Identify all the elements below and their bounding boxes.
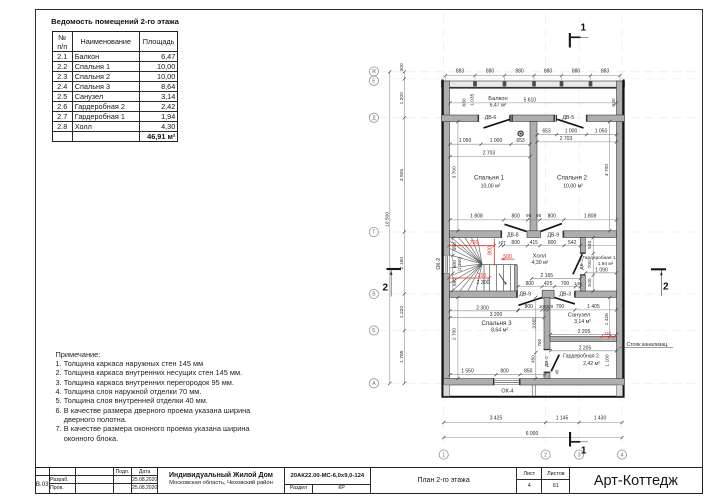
svg-text:2 700: 2 700 [452,328,458,341]
svg-text:1: 1 [581,445,587,456]
svg-text:653: 653 [516,138,525,144]
svg-text:Гардеробная 2: Гардеробная 2 [563,354,599,360]
svg-text:А: А [372,381,376,387]
svg-text:1 808: 1 808 [584,213,597,219]
svg-text:1: 1 [581,22,587,33]
svg-text:Е: Е [372,78,376,84]
svg-text:3,14 м²: 3,14 м² [574,319,591,325]
svg-text:880: 880 [515,69,524,75]
svg-text:2: 2 [663,282,669,293]
svg-text:Балкон: Балкон [488,96,507,102]
svg-text:140: 140 [574,281,582,286]
svg-text:Спальня 1: Спальня 1 [474,175,505,182]
svg-text:Холл: Холл [533,254,547,260]
svg-text:Спальня 3: Спальня 3 [481,320,512,327]
svg-text:100: 100 [546,304,554,309]
svg-text:700: 700 [587,260,593,268]
svg-text:800: 800 [548,240,557,246]
svg-text:1 145: 1 145 [556,416,569,422]
svg-text:107: 107 [498,240,506,245]
svg-text:ДВ-8: ДВ-8 [507,232,519,238]
svg-text:1 550: 1 550 [461,369,474,375]
svg-text:10,00 м²: 10,00 м² [563,184,583,190]
svg-text:590: 590 [452,278,458,286]
svg-text:8,64 м²: 8,64 м² [491,328,508,334]
svg-text:850: 850 [524,369,533,375]
svg-text:3 700: 3 700 [452,166,458,179]
svg-text:3 700: 3 700 [604,164,610,177]
svg-text:1 090: 1 090 [595,267,608,273]
svg-text:ДВ-6: ДВ-6 [485,115,497,121]
svg-text:1 430: 1 430 [594,416,607,422]
svg-text:ДВ-2: ДВ-2 [544,356,550,367]
svg-text:10 500: 10 500 [384,212,390,227]
svg-text:2 300: 2 300 [476,305,489,311]
svg-text:5 610: 5 610 [524,97,537,103]
svg-text:700: 700 [556,304,565,310]
svg-text:2 150: 2 150 [399,257,405,270]
svg-text:ДВ-3: ДВ-3 [560,291,572,297]
svg-text:Д: Д [372,116,376,122]
svg-text:700: 700 [537,339,542,347]
svg-text:800: 800 [511,240,520,246]
svg-text:Спальня 2: Спальня 2 [557,175,588,182]
svg-text:3 425: 3 425 [490,416,503,422]
svg-text:300: 300 [399,63,405,71]
svg-text:883: 883 [601,69,610,75]
svg-text:ДВ-9: ДВ-9 [519,291,531,297]
svg-text:115: 115 [604,331,612,336]
svg-text:800: 800 [525,304,534,310]
svg-text:Б: Б [372,328,376,334]
svg-text:653: 653 [542,129,551,135]
svg-text:45: 45 [554,369,559,374]
svg-text:1 050: 1 050 [459,138,472,144]
svg-text:ОК-4: ОК-4 [501,389,513,395]
svg-text:1 000: 1 000 [490,138,503,144]
svg-text:542: 542 [568,240,577,246]
svg-text:800: 800 [526,281,535,287]
svg-text:3 200: 3 200 [490,312,503,318]
svg-text:1 035: 1 035 [469,93,475,106]
svg-text:1 200: 1 200 [399,92,405,105]
svg-text:2 703: 2 703 [560,136,573,142]
svg-text:800: 800 [548,213,557,219]
svg-text:10,00 м²: 10,00 м² [481,184,501,190]
svg-text:830: 830 [462,98,468,106]
svg-text:540: 540 [587,278,593,286]
svg-text:2 205: 2 205 [578,329,591,335]
svg-text:1 785: 1 785 [399,350,405,363]
svg-text:1 220: 1 220 [399,306,405,319]
svg-text:880: 880 [572,69,581,75]
svg-text:Санузел: Санузел [568,312,591,318]
svg-text:700: 700 [561,281,570,287]
svg-text:В: В [372,292,376,298]
svg-text:4: 4 [621,452,624,458]
svg-text:590: 590 [452,242,458,250]
svg-text:425: 425 [544,281,553,287]
svg-text:830: 830 [611,98,617,106]
svg-text:1 426: 1 426 [604,313,610,326]
svg-text:Ж: Ж [372,69,377,75]
svg-text:Стояк канализац.: Стояк канализац. [626,342,668,348]
svg-text:800: 800 [500,369,509,375]
svg-text:1 405: 1 405 [587,304,600,310]
svg-text:800: 800 [512,213,521,219]
svg-text:4,30 м²: 4,30 м² [532,260,549,266]
svg-text:Г: Г [373,230,376,236]
svg-text:2 703: 2 703 [483,150,496,156]
svg-text:(1 380): (1 380) [457,256,462,271]
svg-text:6,47 м²: 6,47 м² [490,102,507,108]
svg-text:880: 880 [486,69,495,75]
svg-text:700: 700 [470,240,479,246]
svg-text:200: 200 [478,273,487,279]
svg-text:ДВ-5: ДВ-5 [563,115,575,121]
svg-text:ОК-2: ОК-2 [436,258,442,270]
svg-text:540: 540 [587,240,593,248]
svg-text:2: 2 [383,283,389,294]
svg-text:1: 1 [442,452,445,458]
svg-text:95: 95 [536,213,542,218]
svg-text:415: 415 [530,240,539,246]
svg-text:800: 800 [488,246,494,255]
svg-text:Гардеробная 1: Гардеробная 1 [582,255,615,261]
svg-text:ДВ-9: ДВ-9 [548,232,560,238]
svg-text:2,42 м²: 2,42 м² [583,361,600,367]
svg-text:1 808: 1 808 [470,213,483,219]
svg-text:883: 883 [456,69,465,75]
svg-text:2 165: 2 165 [541,273,554,279]
svg-text:2: 2 [544,452,547,458]
svg-text:450: 450 [531,355,536,363]
svg-text:95: 95 [526,213,532,218]
svg-text:1 100: 1 100 [605,354,611,367]
svg-text:880: 880 [544,69,553,75]
svg-text:2 205: 2 205 [579,345,592,351]
svg-text:6 000: 6 000 [526,431,539,437]
svg-text:1 000: 1 000 [565,129,578,135]
svg-text:3 925: 3 925 [399,169,405,182]
svg-text:2 300: 2 300 [477,280,490,286]
svg-text:1 050: 1 050 [595,129,608,135]
svg-text:1,94 м²: 1,94 м² [598,261,614,267]
